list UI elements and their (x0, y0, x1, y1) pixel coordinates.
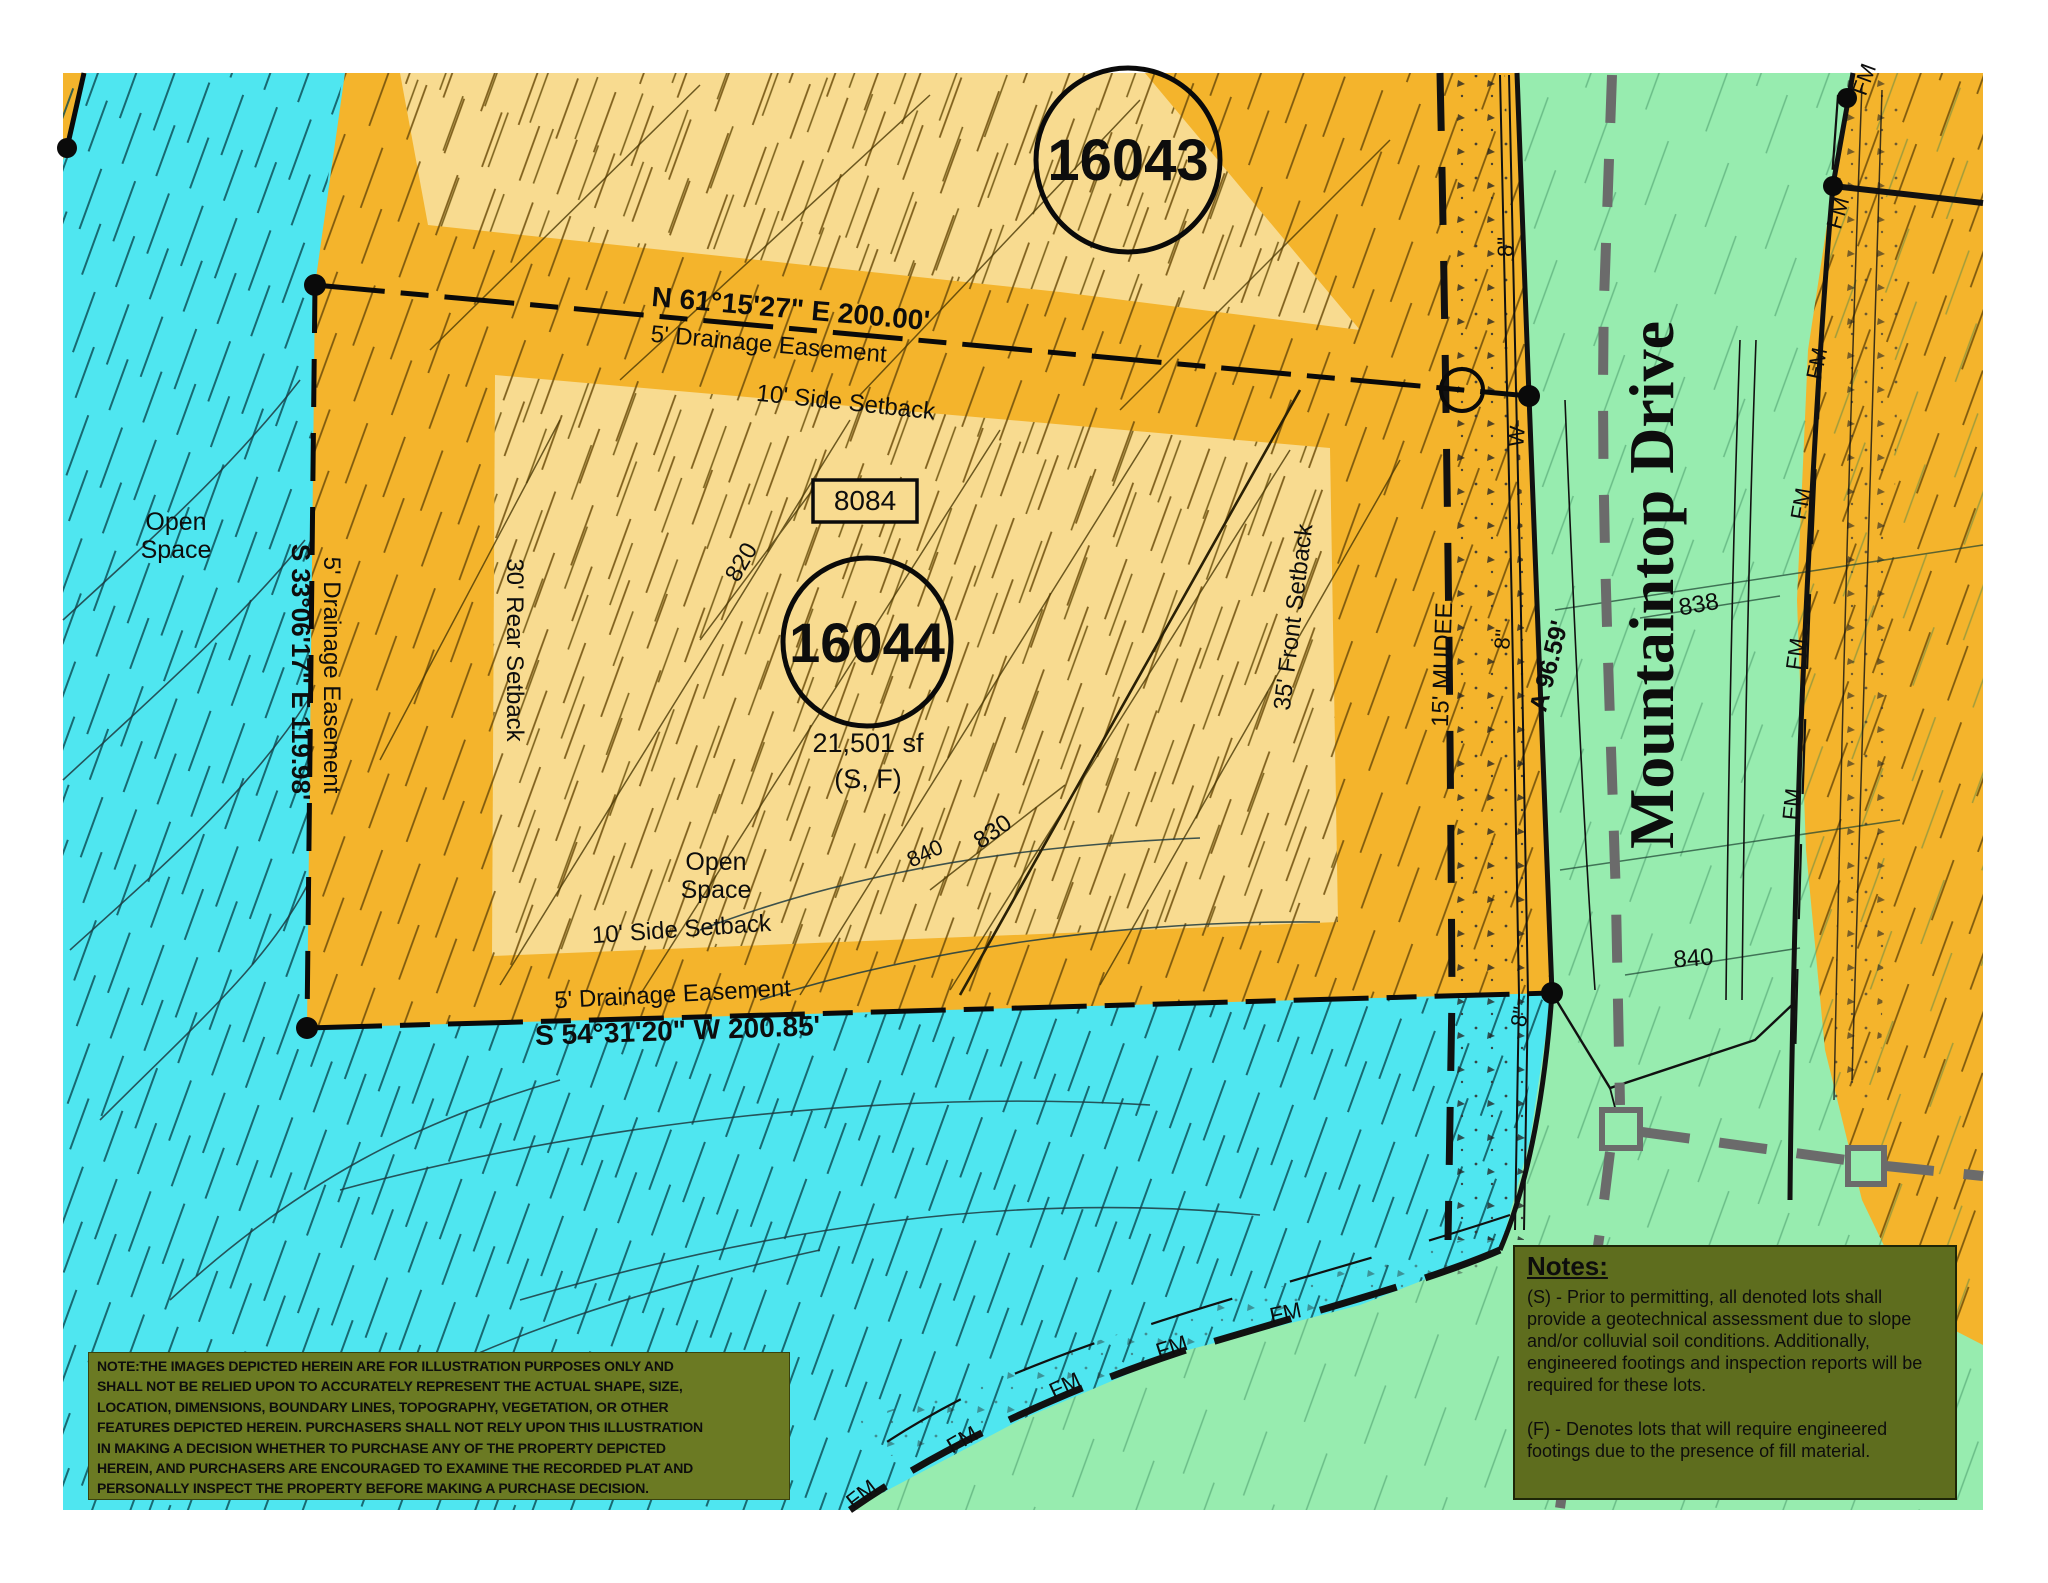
setback-rear: 30' Rear Setback (501, 558, 528, 742)
open-space-2-line2: Space (681, 876, 752, 904)
water-8-top: 8" (1493, 237, 1518, 257)
notes-paragraph-f: (F) - Denotes lots that will require eng… (1527, 1418, 1943, 1462)
corner-far-west (57, 138, 77, 158)
notes-box: Notes: (S) - Prior to permitting, all de… (1513, 1245, 1957, 1500)
bearing-west: S 33°06'17" E 119.98' (286, 544, 316, 800)
water-8-mid: 8" (1489, 628, 1516, 650)
fm-right-5: FM (1777, 787, 1805, 821)
corner-sw (296, 1017, 318, 1039)
corner-se (1541, 982, 1563, 1004)
notes-paragraph-s: (S) - Prior to permitting, all denoted l… (1527, 1286, 1943, 1396)
lot-16044-flags: (S, F) (834, 764, 902, 794)
fm-right-4: FM (1781, 636, 1810, 671)
lot-16043-number: 16043 (1047, 128, 1208, 193)
lot-16044-area: 21,501 sf (812, 728, 924, 758)
lot-16044-number: 16044 (789, 611, 945, 674)
street-name: Mountaintop Drive (1616, 321, 1687, 849)
plat-map-page: 160431604421,501 sf(S, F)8084N 61°15'27"… (0, 0, 2048, 1583)
corner-nw (304, 274, 326, 296)
lot-16044-address: 8084 (834, 485, 896, 516)
easement-label-left: 5' Drainage Easement (318, 557, 345, 794)
notes-title: Notes: (1527, 1251, 1943, 1282)
open-space-2-line1: Open (685, 848, 746, 876)
trail-node-square-2 (1848, 1148, 1884, 1184)
mudee-label: 15' MUDEE (1427, 602, 1458, 727)
corner-ne (1518, 385, 1540, 407)
contour-840-street: 840 (1673, 944, 1715, 974)
corner-far-ne2 (1823, 176, 1843, 196)
disclaimer-note: NOTE:THE IMAGES DEPICTED HEREIN ARE FOR … (88, 1352, 790, 1500)
water-8-low: 8" (1506, 1005, 1534, 1029)
trail-node-square-1 (1602, 1110, 1640, 1148)
open-space-1-line1: Open (145, 508, 206, 536)
open-space-1-line2: Space (141, 536, 212, 564)
water-w: W (1503, 425, 1530, 448)
